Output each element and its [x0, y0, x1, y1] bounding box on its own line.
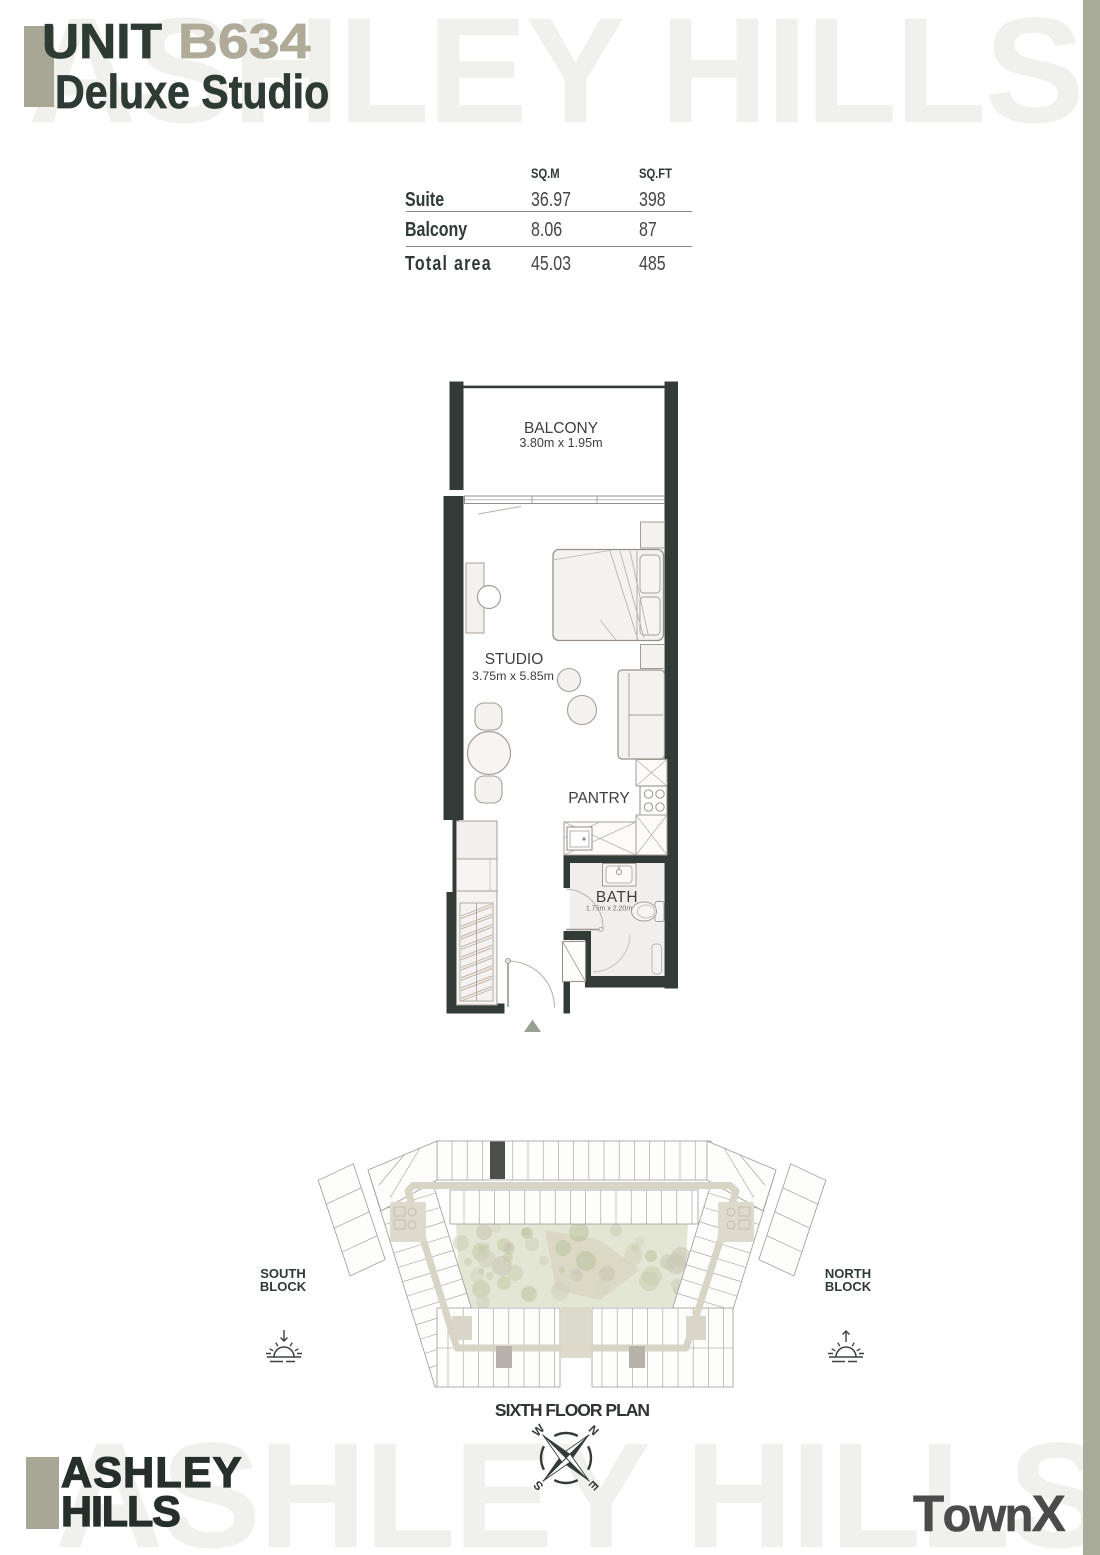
svg-text:3.75m x 5.85m: 3.75m x 5.85m [472, 669, 554, 683]
svg-text:1.75m x 2.20m: 1.75m x 2.20m [586, 906, 632, 913]
svg-text:3.80m x 1.95m: 3.80m x 1.95m [519, 436, 602, 450]
svg-text:BALCONY: BALCONY [524, 420, 598, 437]
svg-text:STUDIO: STUDIO [485, 651, 544, 668]
svg-text:BATH: BATH [596, 889, 638, 906]
svg-text:PANTRY: PANTRY [568, 790, 629, 807]
